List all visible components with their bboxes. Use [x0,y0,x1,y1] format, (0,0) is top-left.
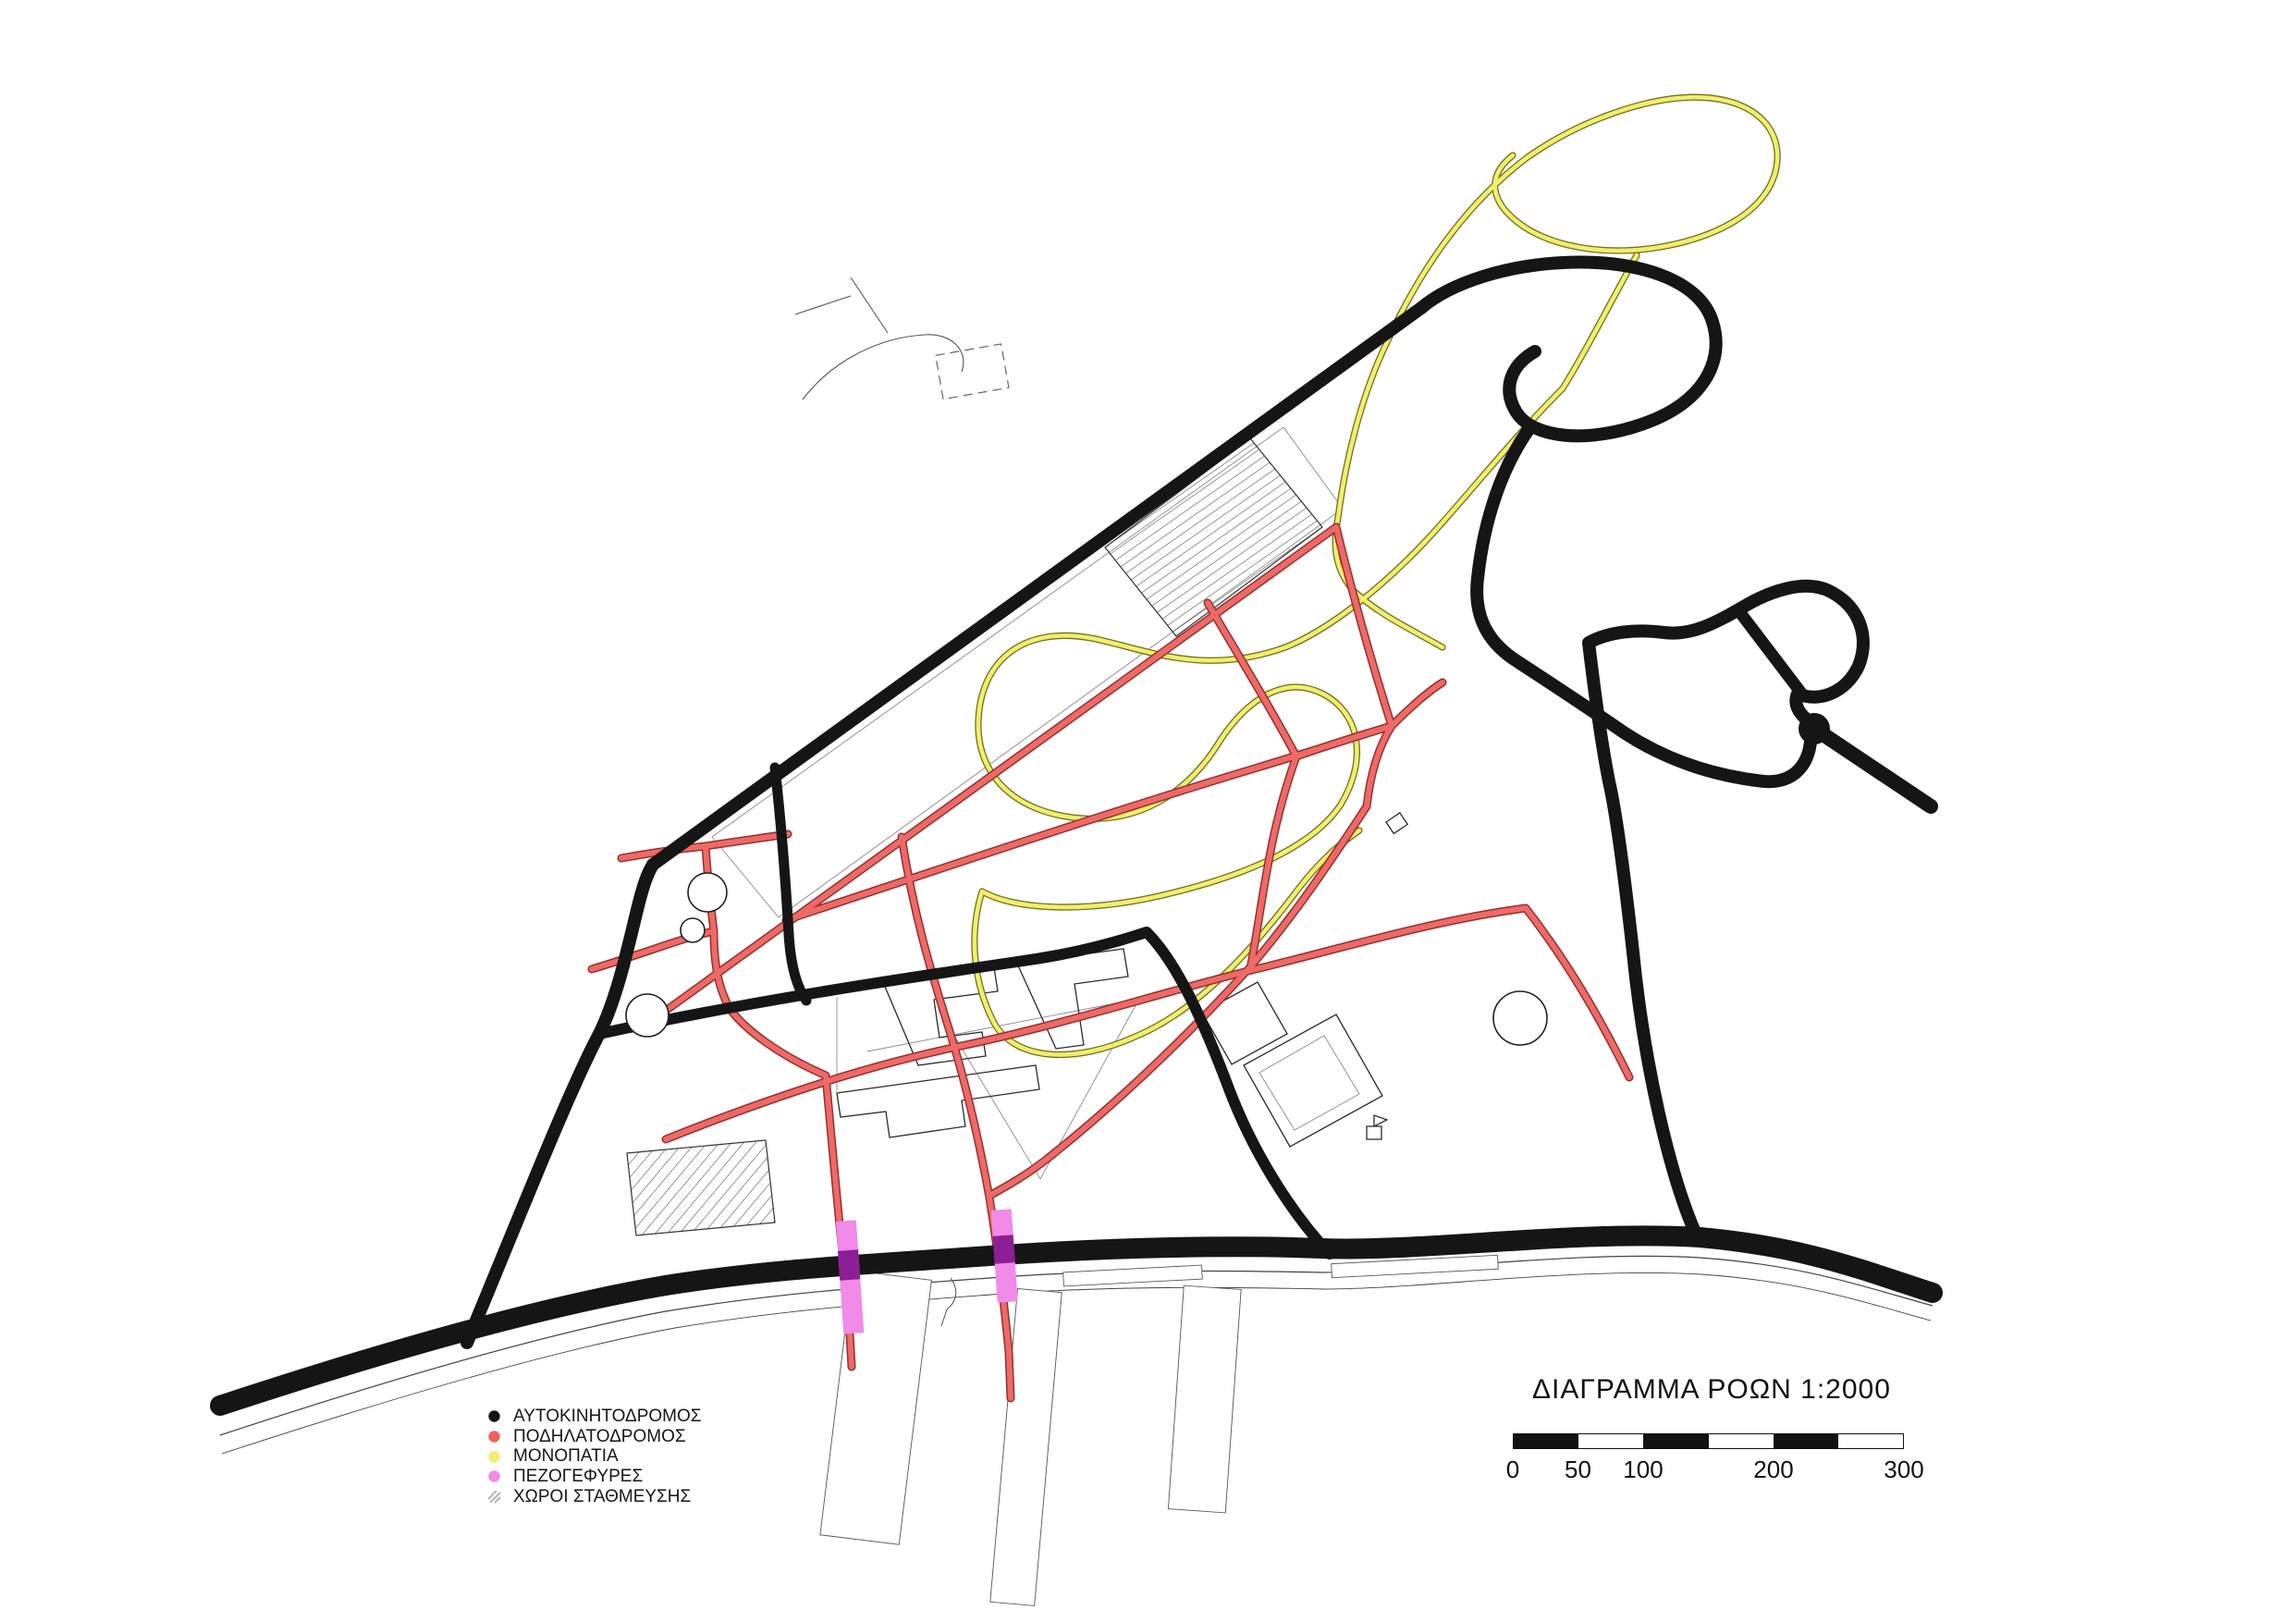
stadium-building [1386,813,1407,834]
scale-label: 50 [1565,1456,1591,1484]
cable-car-line [795,277,1009,399]
motorway-network [220,263,1933,1406]
pedestrian-bridge-west [836,1220,864,1333]
footpath-dot-icon [487,1450,501,1464]
legend-label: ΑΥΤΟΚΙΝΗΤΟΔΡΟΜΟΣ [513,1407,702,1427]
legend-label: ΠΕΖΟΓΕΦΥΡΕΣ [513,1467,643,1487]
serpentine-road [1421,263,1716,436]
legend-label: ΧΩΡΟΙ ΣΤΑΘΜΕΥΣΗΣ [513,1487,691,1507]
parking-hatch-icon [487,1490,501,1504]
lower-block-buildings [837,949,1387,1179]
scale-bar-segments [1513,1433,1904,1449]
legend-item-parking: ΧΩΡΟΙ ΣΤΑΘΜΕΥΣΗΣ [487,1487,702,1507]
legend-item-cycleway: ΠΟΔΗΛΑΤΟΔΡΟΜΟΣ [487,1427,702,1447]
legend-item-footpaths: ΜΟΝΟΠΑΤΙΑ [487,1446,702,1467]
legend-label: ΜΟΝΟΠΑΤΙΑ [513,1446,619,1467]
tree-circle [626,994,669,1037]
scale-label: 100 [1623,1456,1663,1484]
legend-item-footbridges: ΠΕΖΟΓΕΦΥΡΕΣ [487,1467,702,1487]
flow-diagram-sheet: ΔΙΑΓΡΑΜΜΑ ΡΟΩΝ 1:2000 ΑΥΤΟΚΙΝΗΤΟΔΡΟΜΟΣ Π… [0,0,2296,1622]
tree-circle [688,873,727,912]
legend-label: ΠΟΔΗΛΑΤΟΔΡΟΜΟΣ [513,1427,686,1447]
pedestrian-bridge-east [991,1209,1018,1302]
east-boundary-road [1589,586,1863,1236]
stadium-track [1386,813,1407,834]
scale-label: 300 [1884,1456,1923,1484]
legend-item-motorway: ΑΥΤΟΚΙΝΗΤΟΔΡΟΜΟΣ [487,1407,702,1427]
interchange-ramp [1738,610,1803,695]
northeast-avenue [653,308,1421,865]
tree-circle-hill [1493,991,1547,1045]
scale-bar: 0 50 100 200 300 [1513,1433,1904,1483]
west-boundary-road [467,865,653,1343]
tree-circle [681,918,705,942]
map-legend: ΑΥΤΟΚΙΝΗΤΟΔΡΟΜΟΣ ΠΟΔΗΛΑΤΟΔΡΟΜΟΣ ΜΟΝΟΠΑΤΙ… [487,1407,702,1506]
cycleway-dot-icon [487,1430,501,1444]
internal-road [775,768,806,1001]
footpath-network [975,97,1777,1054]
serpentine-descent [1477,431,1811,781]
exit-road-southeast [1811,726,1931,806]
footbridge-dot-icon [487,1469,501,1483]
page-title: ΔΙΑΓΡΑΜΜΑ ΡΟΩΝ 1:2000 [1532,1374,1891,1406]
scale-label: 200 [1753,1456,1793,1484]
scale-bar-labels: 0 50 100 200 300 [1513,1456,1904,1483]
harbor-piers [820,1255,1498,1605]
site-plan-map [0,0,2296,1622]
scale-label: 0 [1506,1456,1519,1484]
parking-area-south [627,1140,775,1235]
motorway-dot-icon [487,1409,501,1423]
